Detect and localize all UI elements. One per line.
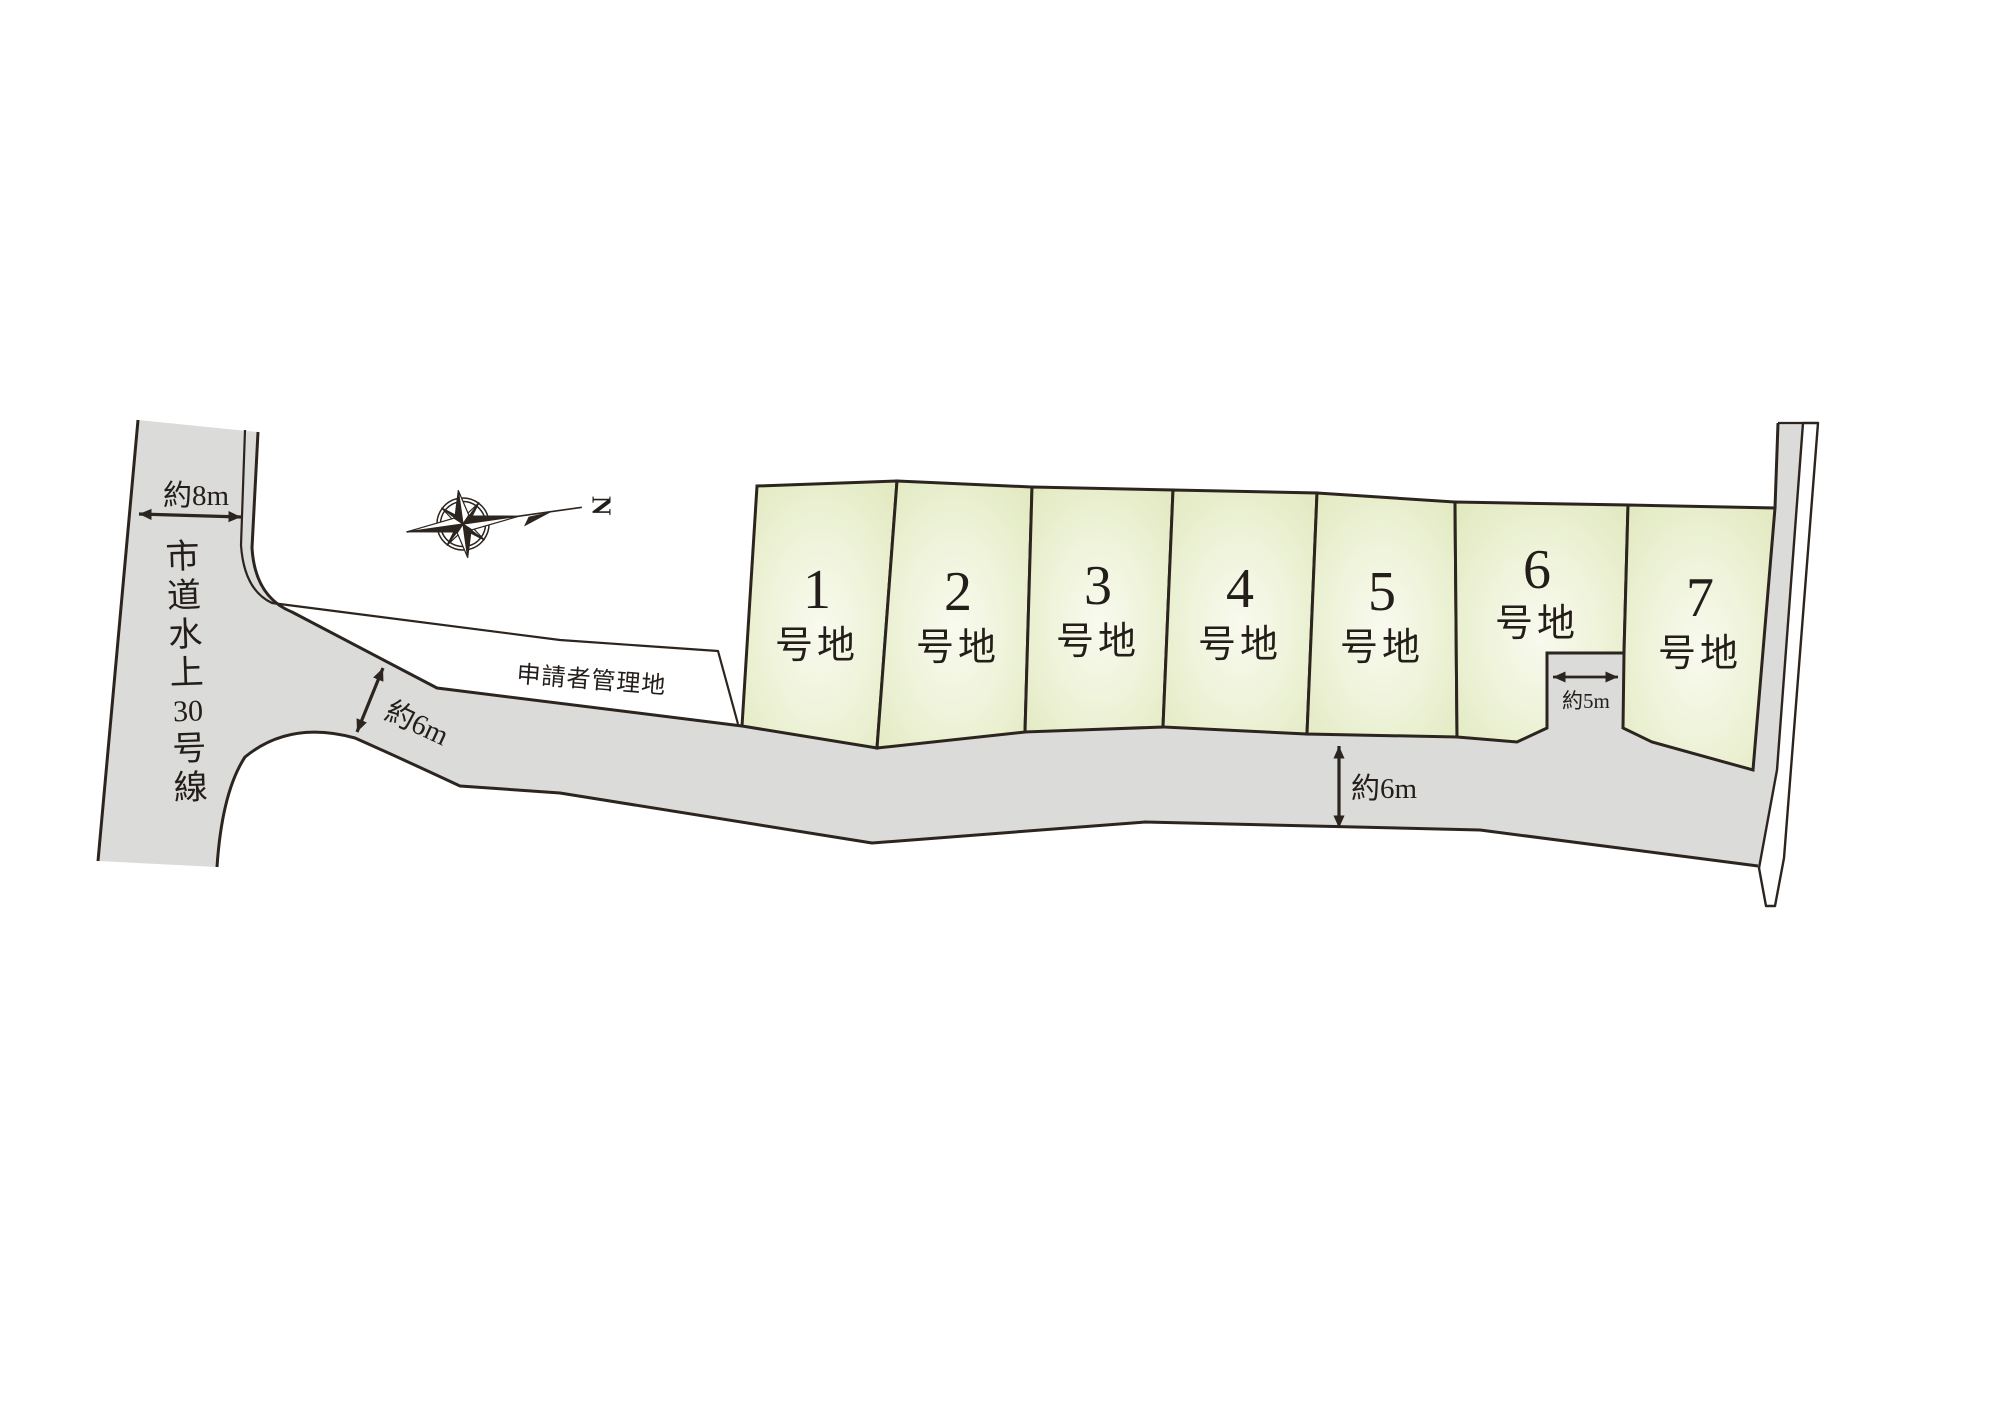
lot-3-number: 3 xyxy=(1084,555,1112,617)
lot-3-suffix: 号地 xyxy=(1056,621,1140,663)
lot-1-number: 1 xyxy=(803,559,831,621)
city-road-char-3: 水 xyxy=(168,616,203,654)
dimension-label-driveway: 約5m xyxy=(1562,689,1610,713)
city-road-char-1: 市 xyxy=(165,537,200,576)
lot-7-suffix: 号地 xyxy=(1658,633,1742,675)
dimension-label-south-road: 約6m xyxy=(1351,772,1418,805)
lot-4-number: 4 xyxy=(1226,558,1254,620)
lot-6-suffix: 号地 xyxy=(1495,603,1579,645)
city-road-char-2: 道 xyxy=(166,576,201,615)
lot-7-number: 7 xyxy=(1686,567,1714,629)
compass-rose: N xyxy=(402,469,623,566)
city-road-char-4: 上 xyxy=(169,654,204,692)
north-label: N xyxy=(587,496,617,516)
site-plan-drawing: 1 号地 2 号地 3 号地 4 号地 5 号地 6 号地 7 号地 市 道 水… xyxy=(0,0,2000,1413)
lot-1-suffix: 号地 xyxy=(775,625,859,667)
lot-2-suffix: 号地 xyxy=(916,627,1000,669)
dimension-label-west-road: 約8m xyxy=(163,479,230,512)
compass-cardinal-points xyxy=(402,482,524,565)
lot-5-suffix: 号地 xyxy=(1340,627,1424,669)
site-plan: 1 号地 2 号地 3 号地 4 号地 5 号地 6 号地 7 号地 市 道 水… xyxy=(0,0,2000,1413)
city-road-char-5: 30 xyxy=(172,694,203,728)
lot-2-number: 2 xyxy=(944,561,972,623)
city-road-char-7: 線 xyxy=(173,768,208,807)
city-road-char-6: 号 xyxy=(172,730,207,768)
lot-4-suffix: 号地 xyxy=(1198,624,1282,666)
lot-5-number: 5 xyxy=(1368,561,1396,623)
managed-land-label: 申請者管理地 xyxy=(516,661,668,700)
lot-6-number: 6 xyxy=(1523,539,1551,601)
